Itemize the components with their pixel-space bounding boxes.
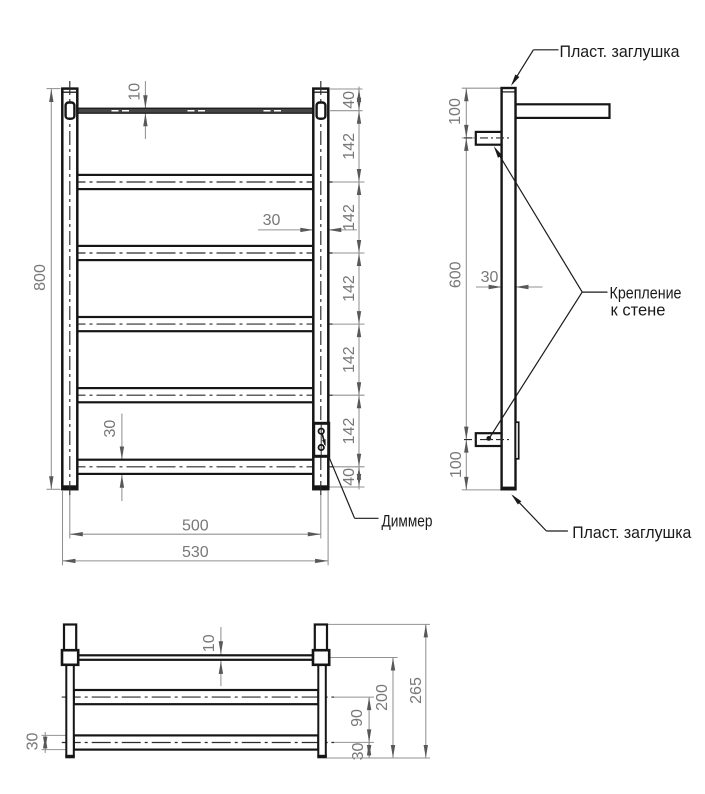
svg-text:142: 142 (341, 275, 358, 302)
svg-text:10: 10 (201, 634, 218, 652)
svg-text:90: 90 (349, 709, 366, 727)
svg-text:40: 40 (341, 91, 358, 109)
svg-text:142: 142 (341, 133, 358, 160)
svg-text:40: 40 (341, 468, 358, 486)
svg-text:600: 600 (448, 261, 465, 288)
svg-text:100: 100 (448, 451, 465, 478)
svg-text:Крепление: Крепление (610, 283, 682, 302)
svg-text:Пласт. заглушка: Пласт. заглушка (560, 42, 681, 61)
svg-text:530: 530 (182, 544, 209, 561)
svg-text:200: 200 (374, 684, 391, 711)
svg-text:800: 800 (32, 264, 49, 291)
svg-text:142: 142 (341, 418, 358, 445)
svg-text:142: 142 (341, 204, 358, 231)
svg-text:142: 142 (341, 346, 358, 373)
svg-text:100: 100 (447, 98, 464, 125)
svg-text:к стене: к стене (611, 301, 666, 320)
svg-text:10: 10 (126, 83, 143, 101)
svg-text:30: 30 (102, 420, 119, 438)
svg-text:30: 30 (481, 269, 499, 286)
svg-text:30: 30 (263, 212, 281, 229)
svg-text:500: 500 (182, 517, 209, 534)
svg-text:Диммер: Диммер (382, 512, 433, 531)
svg-text:30: 30 (25, 733, 42, 751)
svg-text:Пласт. заглушка: Пласт. заглушка (572, 523, 692, 542)
svg-text:265: 265 (408, 677, 425, 704)
